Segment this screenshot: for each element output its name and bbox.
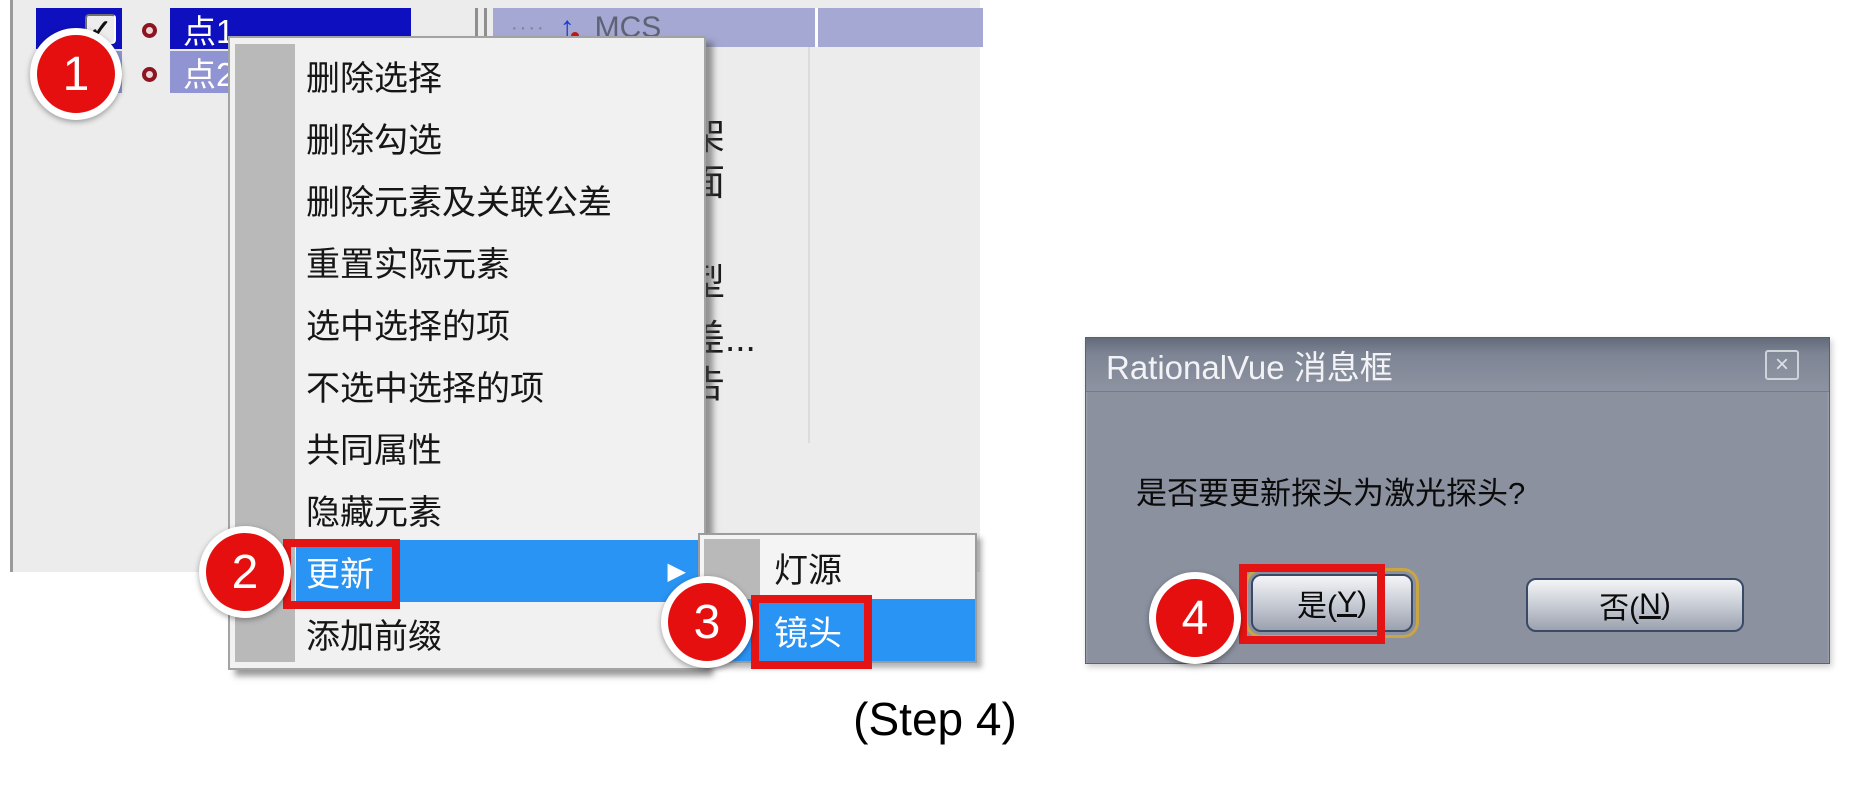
close-icon[interactable]: × [1765,350,1799,380]
no-button-text: 否( [1599,583,1639,627]
no-hotkey: N [1639,588,1661,622]
annotation-badge-1: 1 [30,28,122,120]
annotation-box-update [283,539,400,609]
screenshot-stage: ✓ 点1 ✓ 点2 ···· ↑ MCS 架 面 型 差... 告 删除选择 删… [0,0,1850,785]
dialog-title-bar[interactable]: RationalVue 消息框 × [1086,338,1829,392]
menu-item-delete-checked[interactable]: 删除勾选 [230,106,704,168]
dialog-title: RationalVue 消息框 [1106,341,1393,389]
dialog-message: 是否要更新探头为激光探头? [1136,468,1525,513]
point-bullet-icon [142,67,157,82]
annotation-badge-2: 2 [199,526,291,618]
menu-item-delete-selection[interactable]: 删除选择 [230,44,704,106]
step-caption: (Step 4) [710,692,1160,746]
no-button[interactable]: 否(N) [1526,578,1744,632]
drag-dots-icon: ···· [511,23,546,33]
annotation-badge-3: 3 [661,576,753,668]
menu-item-hide-element[interactable]: 隐藏元素 [230,478,704,540]
menu-item-uncheck-selected[interactable]: 不选中选择的项 [230,354,704,416]
column-gridline [808,47,810,443]
annotation-box-lens [751,595,872,669]
menu-item-common-properties[interactable]: 共同属性 [230,416,704,478]
point-bullet-icon [142,23,157,38]
column-gridline [815,8,818,47]
annotation-box-yes [1239,564,1385,644]
menu-item-check-selected[interactable]: 选中选择的项 [230,292,704,354]
menu-item-reset-actual-element[interactable]: 重置实际元素 [230,230,704,292]
annotation-badge-4: 4 [1149,572,1241,664]
menu-item-add-prefix[interactable]: 添加前缀 [230,602,704,664]
menu-item-delete-element-tolerance[interactable]: 删除元素及关联公差 [230,168,704,230]
no-button-text: ) [1661,588,1671,622]
